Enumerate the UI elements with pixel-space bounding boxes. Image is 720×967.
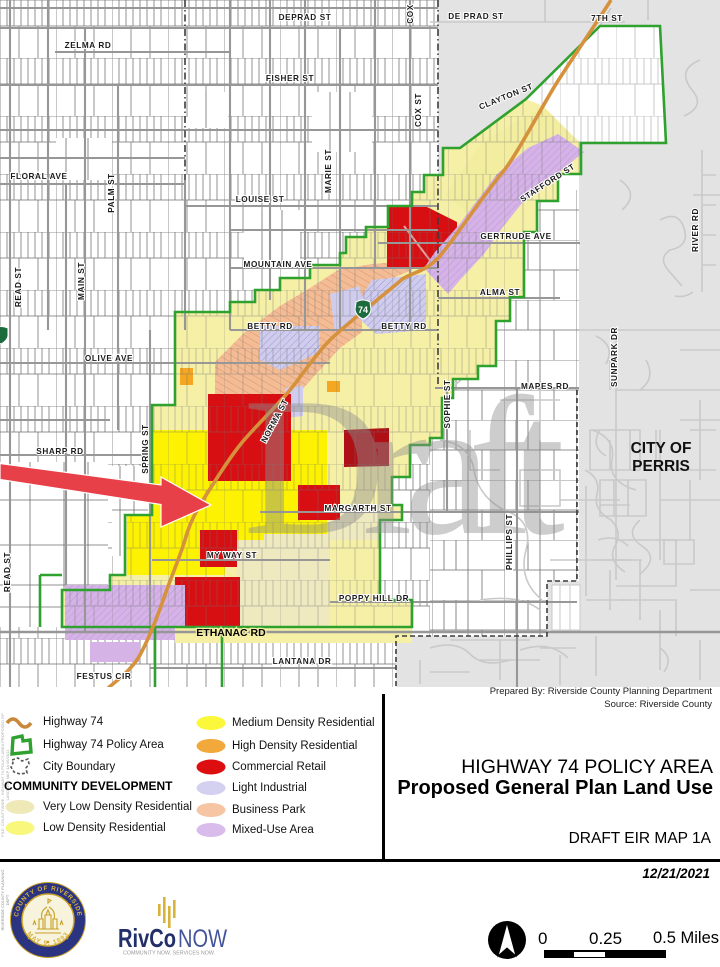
svg-text:COMMUNITY NOW. SERVICES NOW.: COMMUNITY NOW. SERVICES NOW. [123,951,215,957]
svg-text:GERTRUDE AVE: GERTRUDE AVE [480,232,551,241]
svg-text:MARGARTH ST: MARGARTH ST [324,504,391,513]
svg-text:ETHANAC RD: ETHANAC RD [196,627,266,639]
svg-text:PALM ST: PALM ST [107,173,116,213]
svg-text:MY WAY ST: MY WAY ST [207,551,257,560]
svg-text:Draft: Draft [243,357,565,576]
svg-text:BETTY RD: BETTY RD [247,322,293,331]
svg-text:RIVER RD: RIVER RD [691,208,700,252]
svg-text:SPRING ST: SPRING ST [141,424,150,474]
svg-text:ZELMA RD: ZELMA RD [65,41,112,50]
svg-text:DE PRAD ST: DE PRAD ST [448,12,504,21]
svg-text:BETTY RD: BETTY RD [381,322,427,331]
svg-text:ALMA ST: ALMA ST [480,288,520,297]
svg-text:COX ST: COX ST [414,93,423,127]
svg-text:MOUNTAIN AVE: MOUNTAIN AVE [244,260,313,269]
svg-text:SHARP RD: SHARP RD [36,447,83,456]
svg-text:MAPES RD: MAPES RD [521,382,569,391]
svg-text:RivCo: RivCo [118,923,176,953]
svg-text:MAIN ST: MAIN ST [77,262,86,300]
svg-text:CITY OF: CITY OF [631,440,692,457]
svg-text:PHILLIPS ST: PHILLIPS ST [505,514,514,570]
svg-text:LOUISE ST: LOUISE ST [236,195,285,204]
svg-text:FESTUS CIR: FESTUS CIR [77,672,132,681]
svg-text:7TH ST: 7TH ST [591,14,623,23]
svg-text:NOW: NOW [178,925,227,953]
svg-text:FISHER ST: FISHER ST [266,74,314,83]
svg-text:COX: COX [406,4,415,24]
svg-text:74: 74 [358,305,368,315]
svg-text:LANTANA DR: LANTANA DR [273,657,332,666]
svg-text:POPPY HILL DR: POPPY HILL DR [339,594,409,603]
svg-text:SUNPARK DR: SUNPARK DR [610,327,619,387]
svg-text:PERRIS: PERRIS [632,458,690,475]
svg-text:MARIE ST: MARIE ST [324,149,333,193]
svg-text:OLIVE AVE: OLIVE AVE [85,354,133,363]
svg-text:READ ST: READ ST [14,267,23,307]
svg-text:SOPHIE ST: SOPHIE ST [443,379,452,428]
svg-text:READ ST: READ ST [3,552,12,592]
svg-text:DEPRAD ST: DEPRAD ST [279,13,332,22]
svg-text:FLORAL AVE: FLORAL AVE [10,172,67,181]
